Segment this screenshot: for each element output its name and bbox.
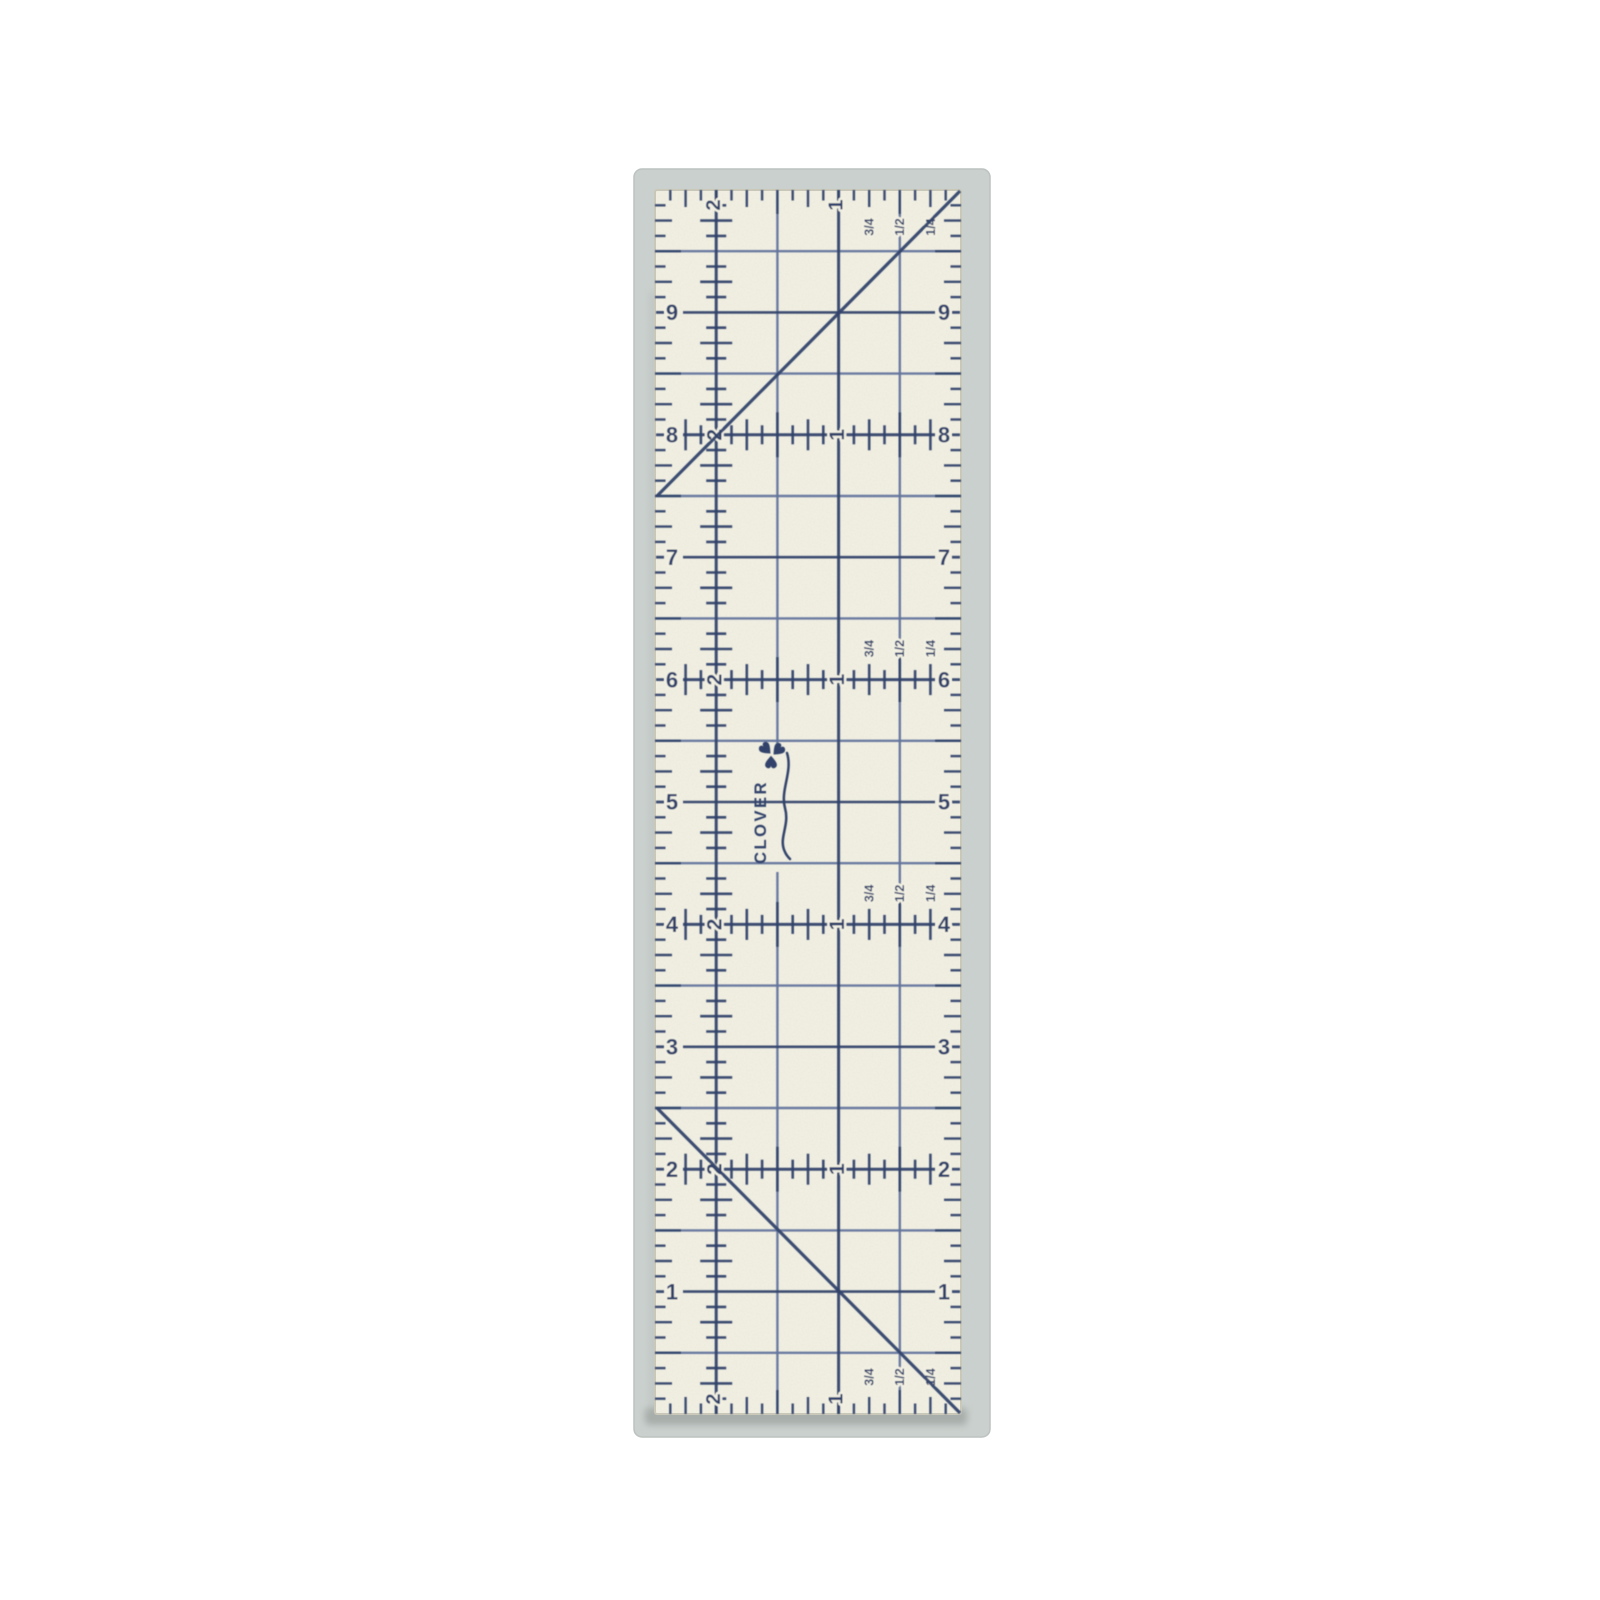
svg-text:1/2: 1/2: [893, 218, 907, 235]
svg-text:2: 2: [703, 199, 725, 210]
svg-text:1/4: 1/4: [924, 640, 938, 657]
svg-text:2: 2: [704, 919, 727, 931]
svg-text:5: 5: [938, 790, 950, 815]
svg-text:1: 1: [666, 1279, 678, 1304]
svg-text:3/4: 3/4: [863, 218, 877, 235]
svg-text:2: 2: [938, 1157, 950, 1182]
svg-text:3: 3: [938, 1035, 950, 1060]
brand-name: CLOVER: [752, 780, 770, 864]
svg-text:4: 4: [938, 912, 951, 937]
svg-text:8: 8: [666, 423, 678, 448]
product-photo-stage: 1122213344213/41/21/45566213/41/21/47788…: [0, 0, 1600, 1600]
svg-text:4: 4: [666, 912, 679, 937]
svg-text:1/4: 1/4: [924, 885, 938, 902]
ruler-markings: 1122213344213/41/21/45566213/41/21/47788…: [655, 190, 961, 1414]
svg-text:1: 1: [826, 673, 849, 685]
svg-text:1: 1: [826, 429, 849, 441]
svg-text:9: 9: [938, 300, 950, 325]
svg-text:7: 7: [938, 545, 950, 570]
svg-text:2: 2: [666, 1157, 678, 1182]
svg-text:1/2: 1/2: [893, 1368, 907, 1385]
svg-text:6: 6: [666, 667, 678, 692]
svg-text:9: 9: [666, 300, 678, 325]
svg-text:5: 5: [666, 790, 678, 815]
svg-text:1: 1: [826, 1163, 849, 1175]
svg-text:2: 2: [704, 674, 727, 686]
svg-text:8: 8: [938, 423, 950, 448]
svg-text:1/2: 1/2: [893, 640, 907, 657]
svg-text:7: 7: [666, 545, 678, 570]
svg-text:3: 3: [666, 1035, 678, 1060]
svg-text:1: 1: [826, 199, 848, 210]
svg-text:1: 1: [826, 1393, 848, 1404]
svg-text:1/2: 1/2: [893, 885, 907, 902]
svg-text:2: 2: [703, 1393, 725, 1404]
svg-text:1: 1: [938, 1279, 950, 1304]
svg-text:3/4: 3/4: [863, 885, 877, 902]
svg-text:3/4: 3/4: [863, 1368, 877, 1385]
svg-text:1: 1: [826, 918, 849, 930]
svg-text:3/4: 3/4: [863, 640, 877, 657]
svg-text:6: 6: [938, 667, 950, 692]
ruler-photo-svg: 1122213344213/41/21/45566213/41/21/47788…: [0, 0, 1600, 1600]
